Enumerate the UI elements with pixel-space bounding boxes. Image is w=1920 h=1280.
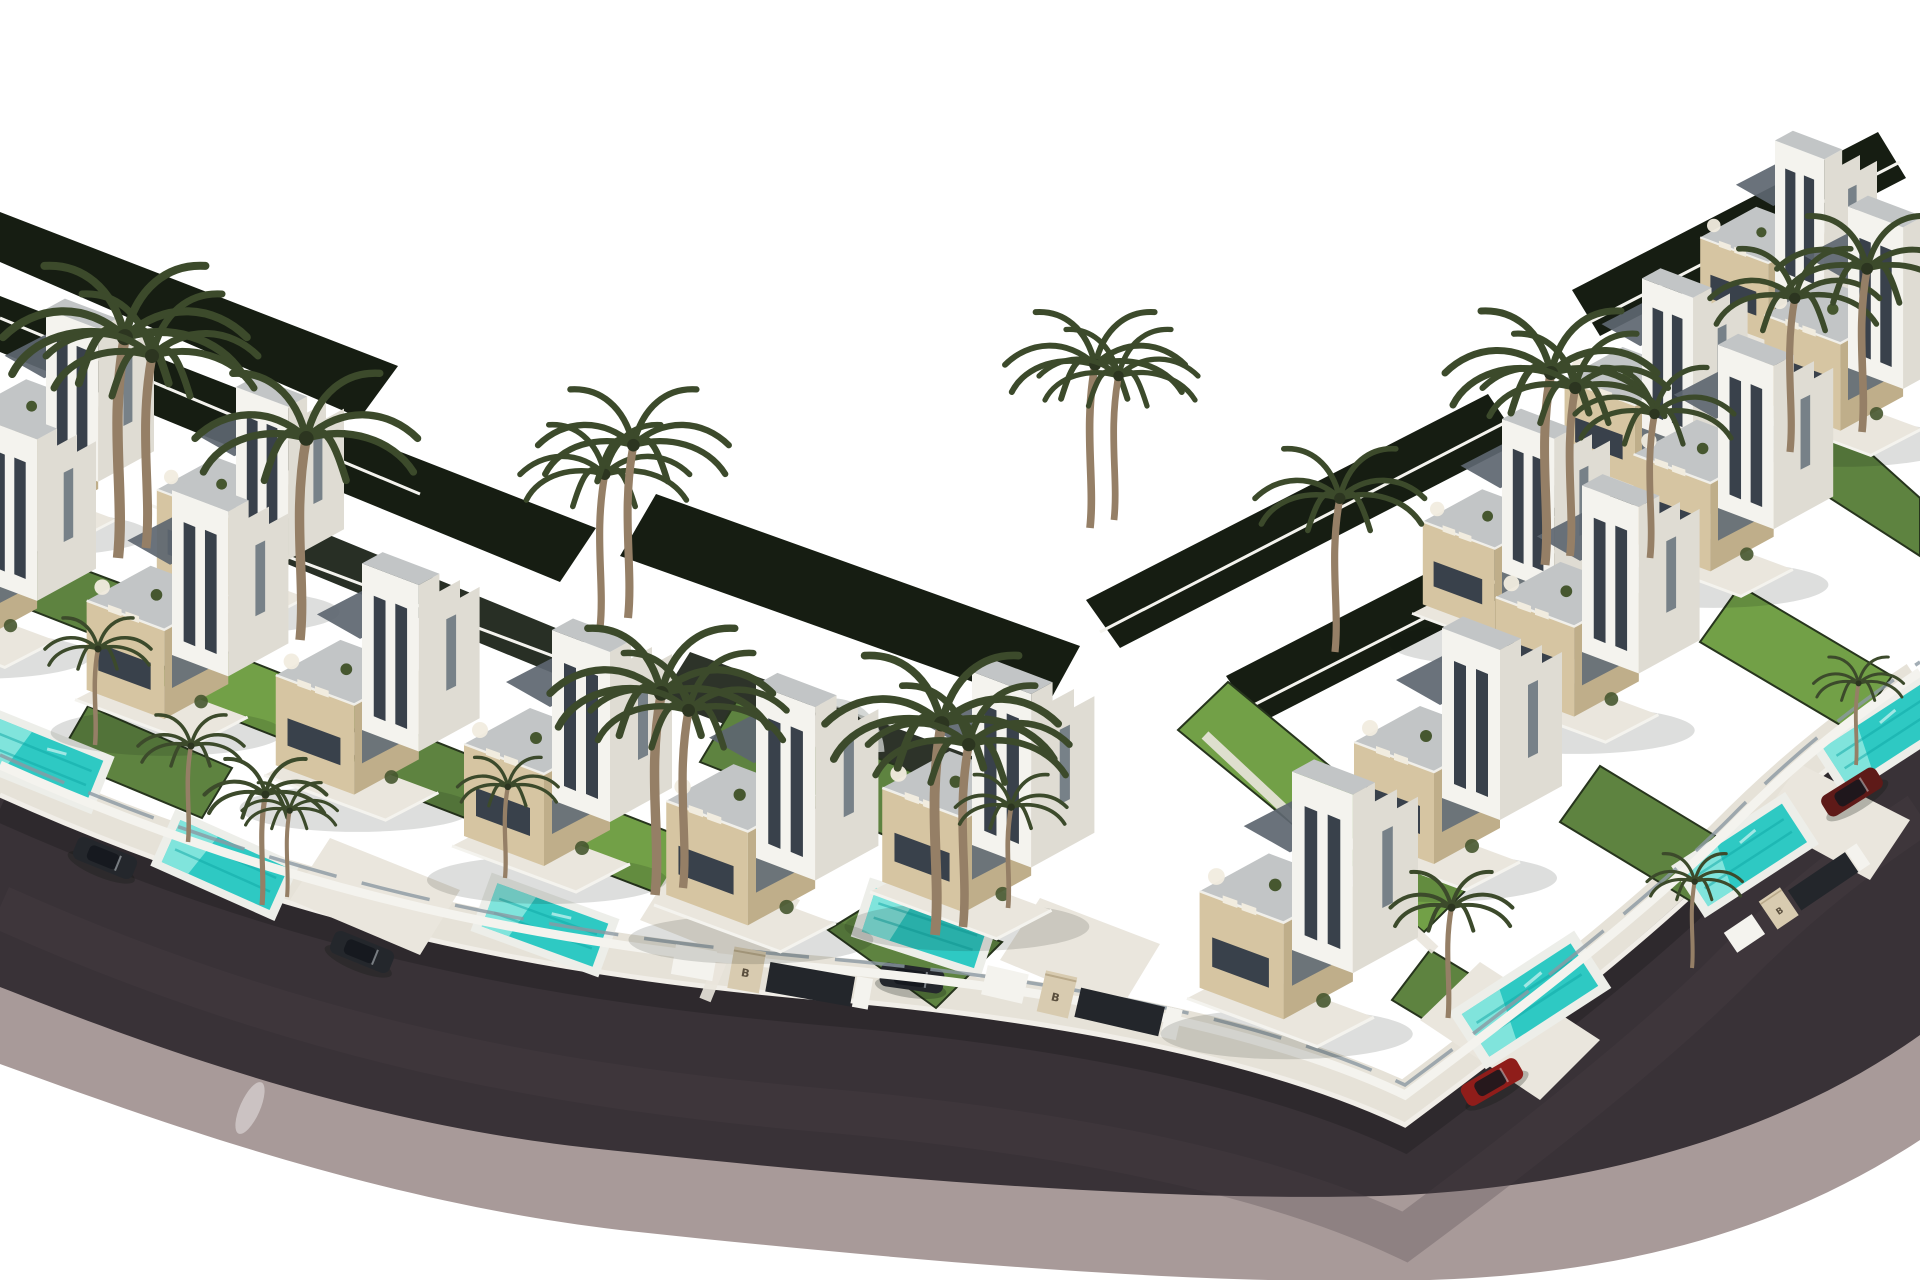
render-canvas: B B B [0, 0, 1920, 1280]
villa-development-render: B B B [0, 0, 1920, 1280]
